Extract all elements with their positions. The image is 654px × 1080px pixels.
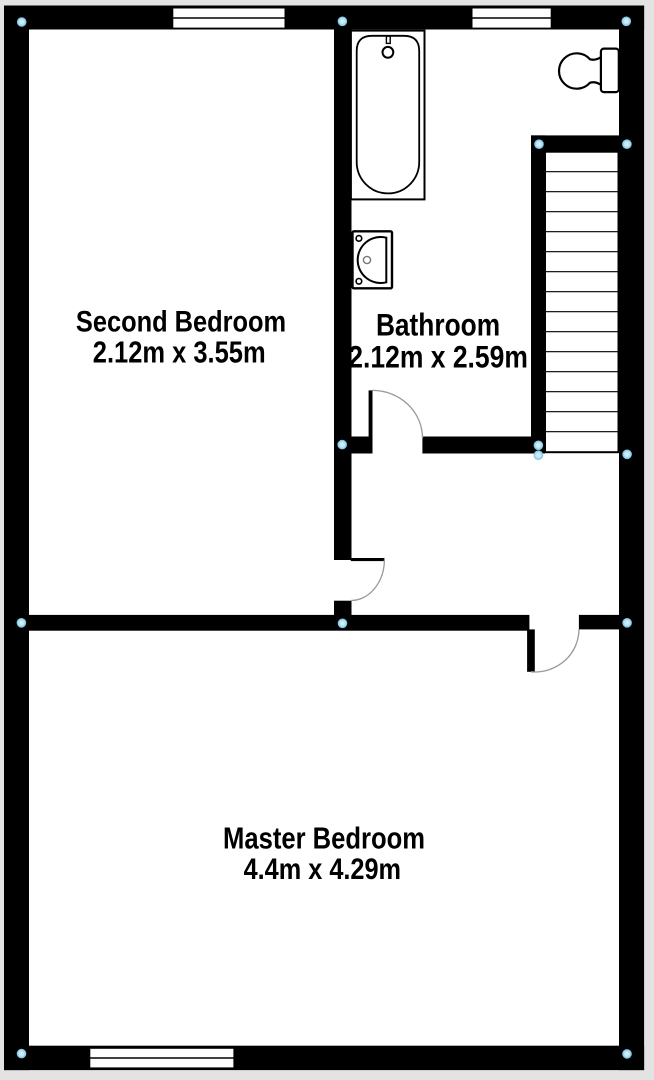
svg-text:2.12m x 2.59m: 2.12m x 2.59m — [348, 340, 528, 375]
svg-text:Master Bedroom: Master Bedroom — [223, 822, 425, 855]
svg-text:Bathroom: Bathroom — [376, 309, 500, 344]
svg-text:4.4m x 4.29m: 4.4m x 4.29m — [244, 852, 401, 885]
svg-text:2.12m x 3.55m: 2.12m x 3.55m — [93, 336, 266, 369]
svg-text:Second Bedroom: Second Bedroom — [76, 305, 286, 338]
